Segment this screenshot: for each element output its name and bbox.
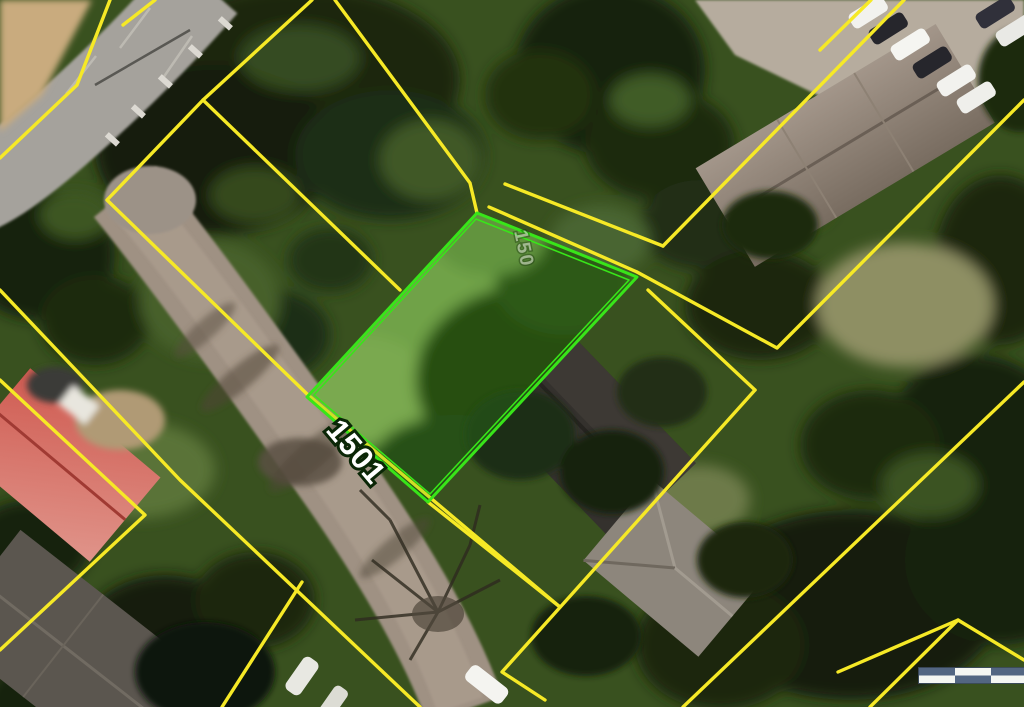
aerial-map[interactable]: 150 1501	[0, 0, 1024, 707]
map-scale-bar	[918, 667, 1024, 684]
aerial-map-viewport[interactable]: 150 1501	[0, 0, 1024, 707]
